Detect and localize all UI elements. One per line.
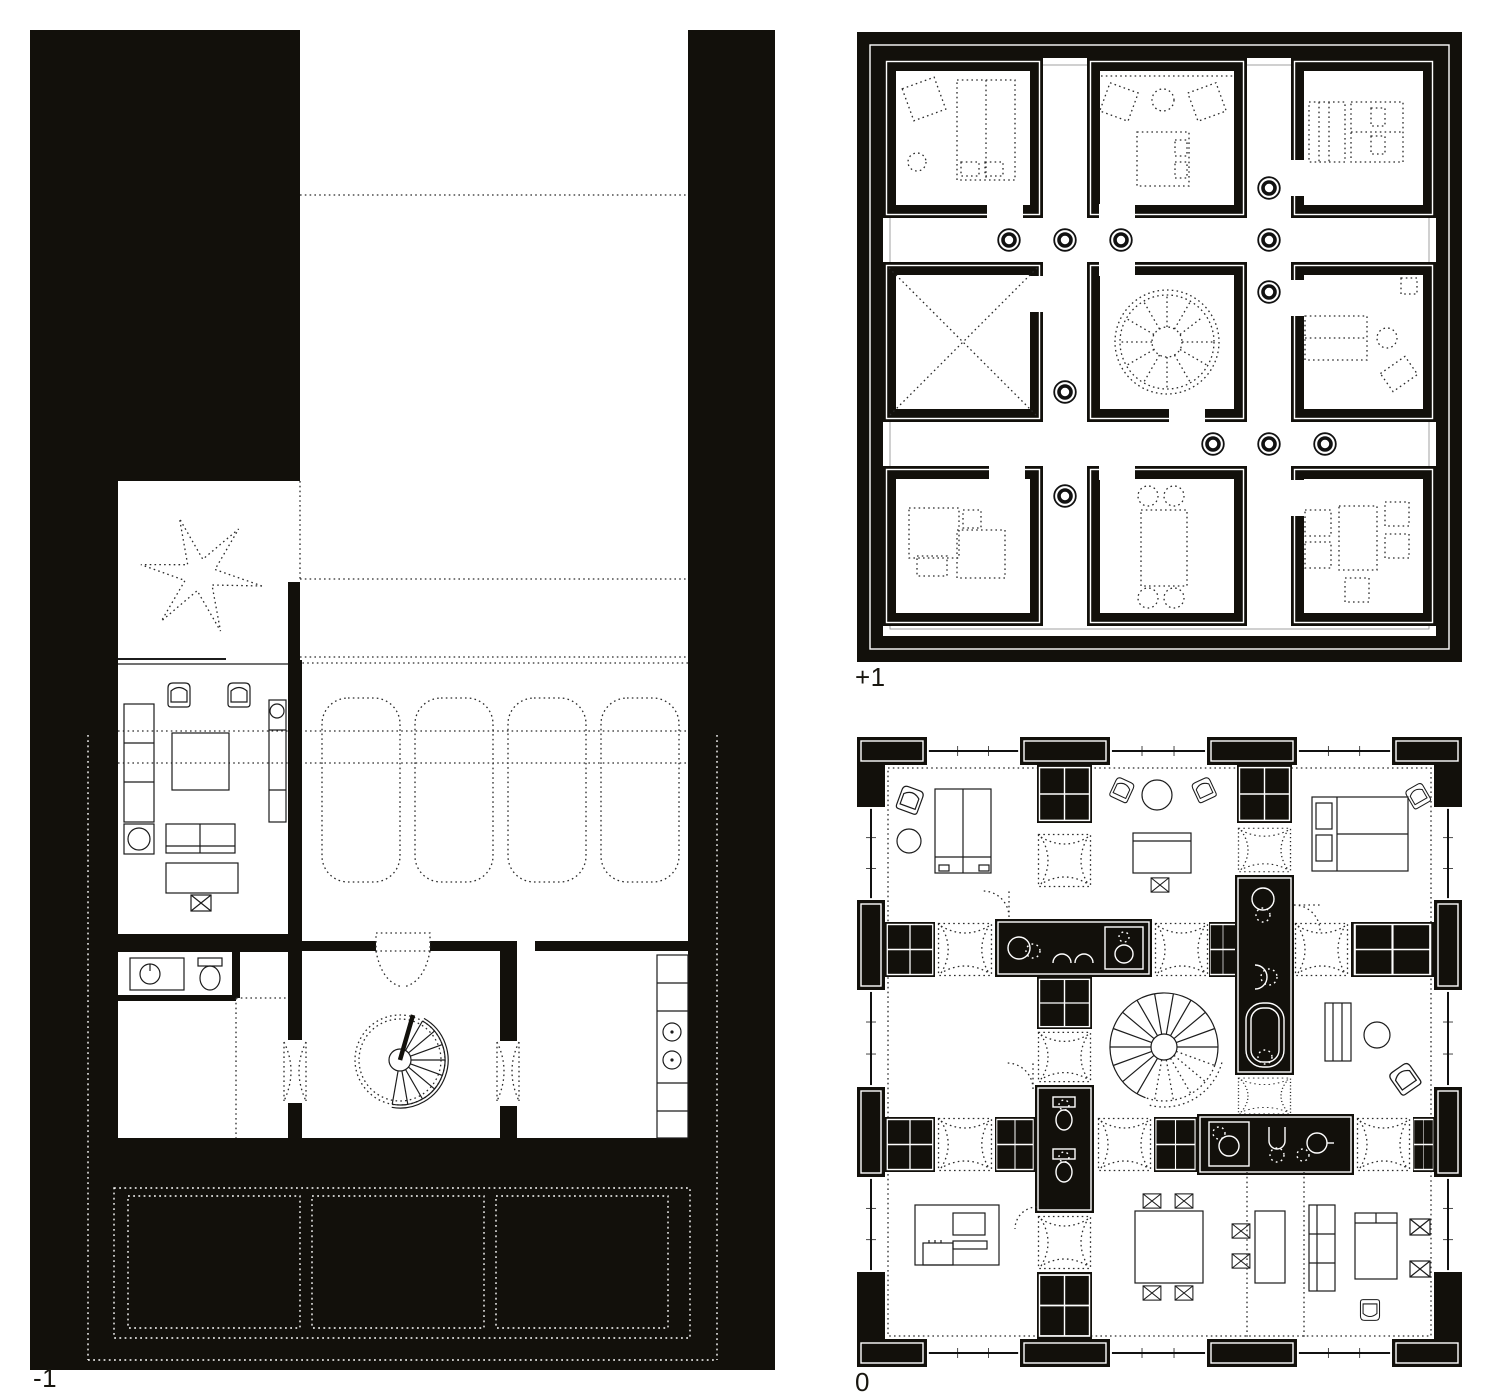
living-room-furniture — [124, 683, 286, 911]
ground-floor-furniture — [896, 777, 1432, 1337]
basement-floor-plan — [30, 30, 775, 1370]
floor-plans-sheet: { "page": { "background": "#ffffff" }, "… — [0, 0, 1512, 1400]
basement-walls — [118, 659, 688, 1138]
door-symbols — [284, 933, 519, 1101]
storage-cores — [885, 765, 1434, 1339]
basement-plan-label: -1 — [33, 1363, 57, 1394]
kitchen-core — [995, 919, 1152, 977]
exterior-walls — [857, 737, 1462, 1367]
spiral-stair-icon — [1110, 993, 1222, 1107]
bathroom-core — [1235, 875, 1294, 1075]
room-grid — [883, 58, 1436, 626]
tree-icon — [141, 519, 262, 631]
ground-plan-label: 0 — [855, 1367, 870, 1398]
kitchen-core-2 — [1197, 1114, 1354, 1175]
wc-core — [1035, 1085, 1094, 1213]
ground-floor-plan — [857, 737, 1462, 1367]
spiral-stair-icon — [355, 1015, 448, 1108]
upper-floor-plan — [857, 32, 1462, 662]
upper-plan-label: +1 — [855, 662, 886, 693]
kitchen-counter — [657, 955, 688, 1138]
garage-parking-spaces — [322, 698, 679, 882]
site-poche — [30, 30, 775, 1370]
bathroom-fixtures — [130, 958, 222, 990]
